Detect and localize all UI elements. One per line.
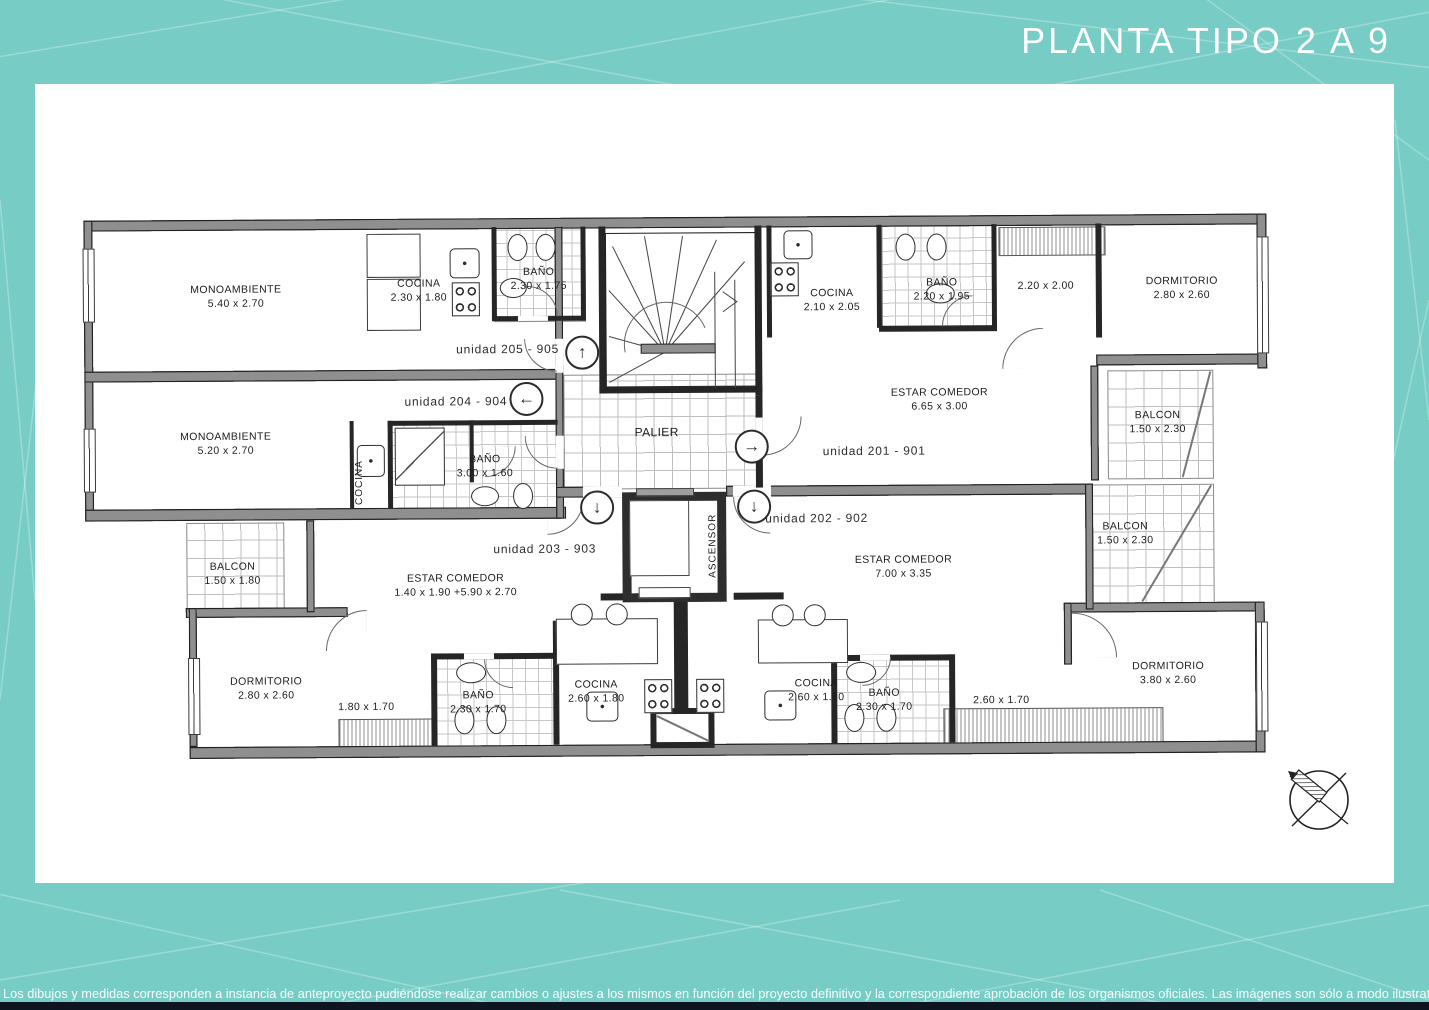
- floor-plan: ASCENSOR ↑ ← → ↓ ↓: [83, 201, 1286, 773]
- room-label-estar-202: ESTAR COMEDOR7.00 x 3.35: [823, 553, 983, 581]
- page-title: PLANTA TIPO 2 A 9: [1021, 20, 1391, 62]
- bidet-icon: [895, 234, 915, 261]
- stool-icon: [804, 604, 826, 626]
- staircase: [604, 232, 757, 391]
- room-label-cocina-203: COCINA2.60 x 1.80: [516, 678, 676, 706]
- room-label-bano-205: BAÑO2.30 x 1.75: [459, 265, 619, 293]
- window: [84, 429, 96, 493]
- stool-icon: [772, 604, 794, 626]
- door-arc: [1072, 612, 1117, 657]
- unit-label-203: unidad 203 - 903: [493, 542, 596, 557]
- wardrobe-201: [998, 226, 1105, 256]
- unit-label-201: unidad 201 - 901: [823, 444, 926, 459]
- bottom-bar: [0, 1002, 1429, 1010]
- wall: [831, 654, 955, 661]
- toilet-icon: [513, 483, 533, 509]
- wall: [879, 325, 997, 332]
- window: [83, 249, 95, 323]
- bath-sink-icon: [471, 486, 499, 506]
- entry-arrow-right-icon: →: [735, 429, 769, 463]
- unit-label-202: unidad 202 - 902: [765, 511, 868, 526]
- entry-arrow-left-icon: ←: [509, 382, 543, 416]
- toilet-icon: [507, 234, 527, 261]
- room-label-estar-203: ESTAR COMEDOR1.40 x 1.90 +5.90 x 2.70: [376, 572, 536, 600]
- compass-icon: [1278, 760, 1358, 840]
- toilet-icon: [926, 233, 946, 260]
- elevator-door: [636, 488, 694, 496]
- kitchen-sink-icon: [783, 230, 812, 259]
- bath-sink-icon: [456, 662, 486, 683]
- entry-arrow-up-icon: ↑: [565, 336, 599, 370]
- elevator-label: ASCENSOR: [707, 502, 718, 578]
- room-label-bano-204: BAÑO3.00 x 1.60: [405, 453, 565, 481]
- kitchen-counter: [556, 618, 658, 665]
- room-label-estar-201: ESTAR COMEDOR6.65 x 3.00: [859, 386, 1019, 414]
- wall: [388, 421, 394, 509]
- wardrobe-203: [338, 719, 432, 749]
- wardrobe-202: [943, 707, 1163, 744]
- disclaimer: Los dibujos y medidas corresponden a ins…: [3, 986, 1429, 1001]
- entry-arrow-down-icon: ↓: [580, 490, 614, 524]
- wall: [726, 484, 1093, 497]
- elevator: ASCENSOR: [622, 492, 727, 603]
- room-label-balcon-202: BALCON1.50 x 2.30: [1045, 520, 1205, 548]
- wall: [84, 369, 562, 383]
- room-label-cocina-204: COCINA: [354, 455, 365, 505]
- room-label-monoambiente-205: MONOAMBIENTE5.40 x 2.70: [156, 283, 316, 311]
- kitchen-counter: [758, 619, 848, 664]
- room-label-palier: PALIER: [577, 425, 737, 442]
- elevator-cab: [629, 500, 689, 576]
- door-arc: [1002, 328, 1043, 369]
- room-label-dormitorio-201: DORMITORIO2.80 x 2.60: [1102, 274, 1262, 302]
- wall: [734, 592, 784, 599]
- room-label-dormitorio-203: DORMITORIO2.80 x 2.60: [186, 675, 346, 703]
- unit-label-205: unidad 205 - 905: [456, 342, 559, 357]
- room-label-balcon-201: BALCON1.50 x 2.30: [1078, 409, 1238, 437]
- window: [1256, 621, 1269, 731]
- wall: [1096, 353, 1266, 365]
- page: { "title": "PLANTA TIPO 2 A 9", "disclai…: [0, 0, 1429, 1010]
- wall: [186, 607, 348, 618]
- stool-icon: [571, 604, 593, 626]
- room-label-balcon-203: BALCON1.50 x 1.80: [152, 560, 312, 588]
- cabinet: [366, 234, 420, 278]
- stove-icon: [696, 679, 724, 713]
- room-label-monoambiente-204: MONOAMBIENTE5.20 x 2.70: [146, 430, 306, 458]
- bidet-icon: [535, 234, 555, 261]
- entry-arrow-down-icon: ↓: [737, 489, 771, 523]
- stool-icon: [606, 603, 628, 625]
- room-label-hall-202: 2.60 x 1.70: [921, 694, 1081, 709]
- elevator-pit: [639, 587, 691, 598]
- wall: [85, 507, 566, 522]
- unit-label-204: unidad 204 - 904: [404, 394, 507, 409]
- room-label-dormitorio-202: DORMITORIO3.80 x 2.60: [1088, 660, 1248, 688]
- door-arc: [547, 498, 584, 535]
